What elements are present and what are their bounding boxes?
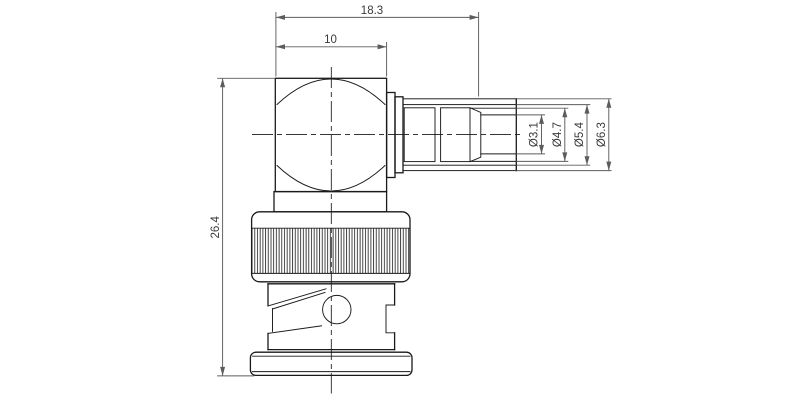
dim-label-overall-length: 18.3	[361, 5, 383, 17]
bayonet-right-notch	[386, 305, 395, 333]
dim-label-dia-tube-inner: Ø5.4	[574, 122, 586, 148]
neck	[274, 192, 387, 212]
bayonet-pin-circle	[323, 295, 351, 323]
bayonet-slot	[269, 289, 351, 334]
dim-label-overall-height: 26.4	[210, 216, 222, 239]
nut-knurl-band	[252, 228, 409, 273]
connector-technical-drawing: 18.3 10 26.4 Ø3.1 Ø4.7 Ø5	[0, 0, 800, 400]
dim-label-dia-tube-outer: Ø6.3	[596, 122, 608, 147]
dimension-overall-height: 26.4	[210, 78, 275, 376]
dim-label-dia-bore: Ø3.1	[529, 122, 541, 147]
dim-label-dia-ferrule: Ø4.7	[552, 122, 564, 147]
dim-label-body-width: 10	[324, 34, 337, 46]
coupling-nut	[252, 192, 410, 282]
dimension-bore-diameter: Ø3.1	[516, 115, 545, 154]
dimension-ferrule-diameter: Ø4.7	[516, 108, 568, 161]
dimension-overall-length: 18.3	[276, 5, 479, 97]
drawing-canvas: 18.3 10 26.4 Ø3.1 Ø4.7 Ø5	[0, 0, 800, 400]
